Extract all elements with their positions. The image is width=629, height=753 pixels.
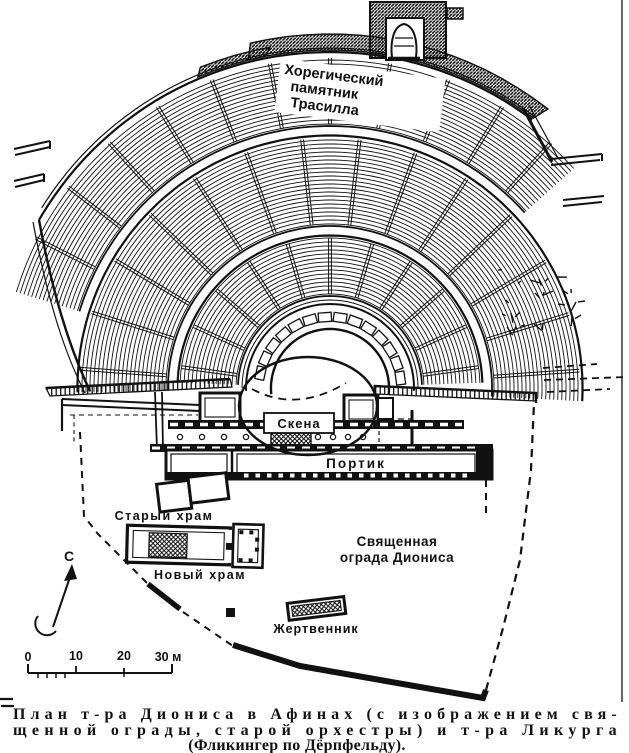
portico-label: Портик bbox=[326, 456, 386, 471]
compass-arrow bbox=[53, 577, 70, 627]
caption-line1: План т-ра Диониса в Афинах (с изображени… bbox=[13, 706, 617, 723]
altar bbox=[287, 597, 346, 621]
new-temple-label: Новый храм bbox=[154, 568, 246, 582]
old-orchestra-dashed-arc bbox=[252, 383, 346, 400]
caption: План т-ра Диониса в Афинах (с изображени… bbox=[13, 706, 617, 753]
skene-building bbox=[62, 392, 464, 450]
old-temple-label: Старый храм bbox=[115, 509, 214, 523]
parodos-walls bbox=[46, 379, 536, 403]
cult-statue-base bbox=[149, 533, 188, 558]
portico-building bbox=[150, 444, 493, 479]
compass-arrowhead bbox=[64, 564, 77, 581]
scale-tick-30: 30 м bbox=[155, 650, 182, 664]
thrasyllus-monument bbox=[370, 2, 463, 60]
monument-label: Хорегический памятник Трасилла bbox=[274, 59, 445, 133]
theatre-plan-page: Хорегический памятник Трасилла Скена Пор… bbox=[0, 0, 629, 753]
scale-tick-10: 10 bbox=[69, 649, 83, 663]
scale-tick-0: 0 bbox=[25, 650, 32, 664]
scale-bar: 0 10 20 30 м bbox=[25, 649, 182, 678]
altar-label: Жертвенник bbox=[272, 622, 358, 636]
monument-bell-shape bbox=[392, 24, 417, 58]
skene-label-box: Скена bbox=[264, 413, 334, 433]
caption-line3: (Фликингер по Дёрпфельду). bbox=[188, 737, 405, 753]
skene-label: Скена bbox=[277, 416, 320, 431]
left-paraskenion bbox=[200, 393, 240, 422]
compass-north-label: С bbox=[64, 548, 74, 564]
compass-rose: С bbox=[35, 548, 77, 635]
small-monument-block bbox=[226, 608, 235, 617]
theatre-plan-figure: Хорегический памятник Трасилла Скена Пор… bbox=[0, 0, 629, 753]
new-temple bbox=[126, 521, 263, 568]
enclosure-label-line1: Священная bbox=[357, 534, 438, 549]
scale-tick-20: 20 bbox=[117, 649, 131, 663]
enclosure-label-line2: ограда Диониса bbox=[340, 550, 454, 565]
